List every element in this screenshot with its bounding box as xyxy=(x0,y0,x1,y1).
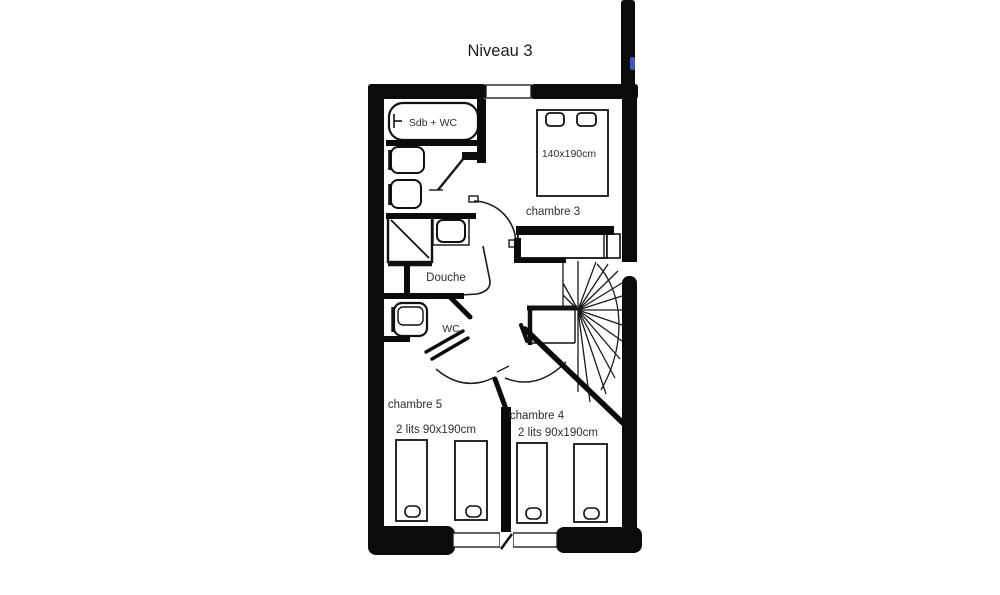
wall-hatch xyxy=(500,532,513,550)
washbasin-2 xyxy=(390,180,421,208)
bottom-window-left xyxy=(453,533,500,547)
floor-plan-drawing: Niveau 3 Sdb + WC Douche WC chambre 3 14… xyxy=(0,0,1000,595)
blue-wall-marker xyxy=(630,57,635,70)
pillow-icon xyxy=(466,506,481,517)
beds-chambre5 xyxy=(396,440,487,521)
label-sdb-wc: Sdb + WC xyxy=(409,117,458,129)
label-beds5-size: 2 lits 90x190cm xyxy=(396,424,476,436)
bedroom5-door-swing xyxy=(436,369,495,383)
floor-plan-page: Niveau 3 Sdb + WC Douche WC chambre 3 14… xyxy=(0,0,1000,595)
page-title: Niveau 3 xyxy=(467,42,532,60)
wc-basin xyxy=(393,303,427,336)
corridor-door-arc xyxy=(474,201,516,244)
label-chambre3: chambre 3 xyxy=(526,206,580,218)
interior-diagonal-walls xyxy=(426,298,624,424)
beds-chambre4 xyxy=(517,443,607,523)
label-chambre5: chambre 5 xyxy=(388,399,442,411)
washbasin-1 xyxy=(390,147,424,173)
stair-shelf xyxy=(518,234,620,258)
pillow-icon xyxy=(584,508,599,519)
label-beds4-size: 2 lits 90x190cm xyxy=(518,427,598,439)
wall-spur-top xyxy=(621,0,635,94)
pillow-icon xyxy=(546,113,564,126)
label-chambre4: chambre 4 xyxy=(510,410,565,422)
bottom-window-right xyxy=(513,533,557,547)
staircase xyxy=(563,261,622,402)
label-bed3-size: 140x190cm xyxy=(542,148,597,160)
pillow-icon xyxy=(577,113,596,126)
label-douche: Douche xyxy=(426,272,466,284)
stair-walkline xyxy=(597,264,619,390)
pillow-icon xyxy=(526,508,541,519)
label-wc: WC xyxy=(442,323,460,335)
shower-tray xyxy=(388,216,432,264)
top-window xyxy=(486,85,531,98)
pillow-icon xyxy=(405,506,420,517)
shower-room-boundary xyxy=(461,246,490,295)
bedroom4-door-swing xyxy=(505,362,566,382)
